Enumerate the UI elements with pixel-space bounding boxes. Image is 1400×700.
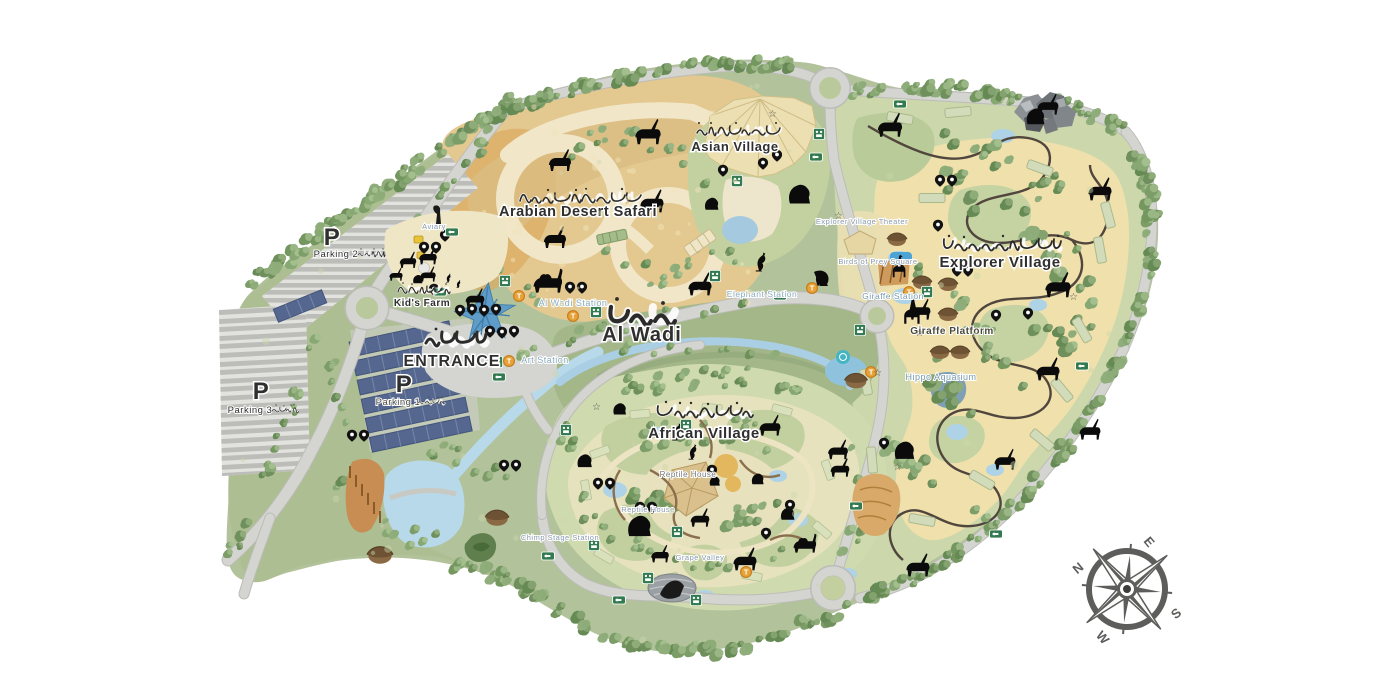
svg-text:Aviary: Aviary xyxy=(422,222,446,231)
svg-text:Parking 2: Parking 2 xyxy=(314,249,359,260)
svg-text:Al Wadi Station: Al Wadi Station xyxy=(539,298,608,308)
svg-text:☆: ☆ xyxy=(893,462,902,473)
svg-text:Elephant Station: Elephant Station xyxy=(727,289,797,299)
svg-text:☆: ☆ xyxy=(592,402,601,413)
svg-text:☆: ☆ xyxy=(915,328,924,339)
svg-text:ENTRANCE: ENTRANCE xyxy=(404,353,501,370)
svg-text:African Village: African Village xyxy=(648,425,759,442)
svg-text:Grape Valley: Grape Valley xyxy=(676,553,725,562)
svg-text:Giraffe Station: Giraffe Station xyxy=(862,291,924,301)
svg-text:Parking 1: Parking 1 xyxy=(376,397,421,408)
svg-text:Hippo Aquarium: Hippo Aquarium xyxy=(905,372,976,382)
svg-text:Chimp Stage Station: Chimp Stage Station xyxy=(521,533,599,542)
svg-text:Explorer Village: Explorer Village xyxy=(939,254,1060,271)
svg-text:Birds of Prey Square: Birds of Prey Square xyxy=(838,257,917,266)
svg-text:Reptile House: Reptile House xyxy=(621,505,675,514)
svg-text:P: P xyxy=(253,378,270,405)
svg-text:☆: ☆ xyxy=(1069,292,1078,303)
svg-text:Parking 3: Parking 3 xyxy=(228,405,273,416)
svg-text:Al Wadi: Al Wadi xyxy=(602,324,682,346)
svg-text:☆: ☆ xyxy=(834,211,843,222)
svg-text:Arabian Desert Safari: Arabian Desert Safari xyxy=(499,204,657,220)
svg-text:☆: ☆ xyxy=(873,368,882,379)
svg-text:Asian Village: Asian Village xyxy=(691,139,778,154)
svg-text:Reptile House: Reptile House xyxy=(660,470,717,479)
svg-text:☆: ☆ xyxy=(768,109,777,120)
svg-text:Kid's Farm: Kid's Farm xyxy=(394,298,450,309)
svg-text:Explorer Village Theater: Explorer Village Theater xyxy=(816,217,908,226)
svg-text:Art Station: Art Station xyxy=(521,355,569,365)
svg-text:P: P xyxy=(324,224,341,251)
svg-text:P: P xyxy=(396,371,413,398)
